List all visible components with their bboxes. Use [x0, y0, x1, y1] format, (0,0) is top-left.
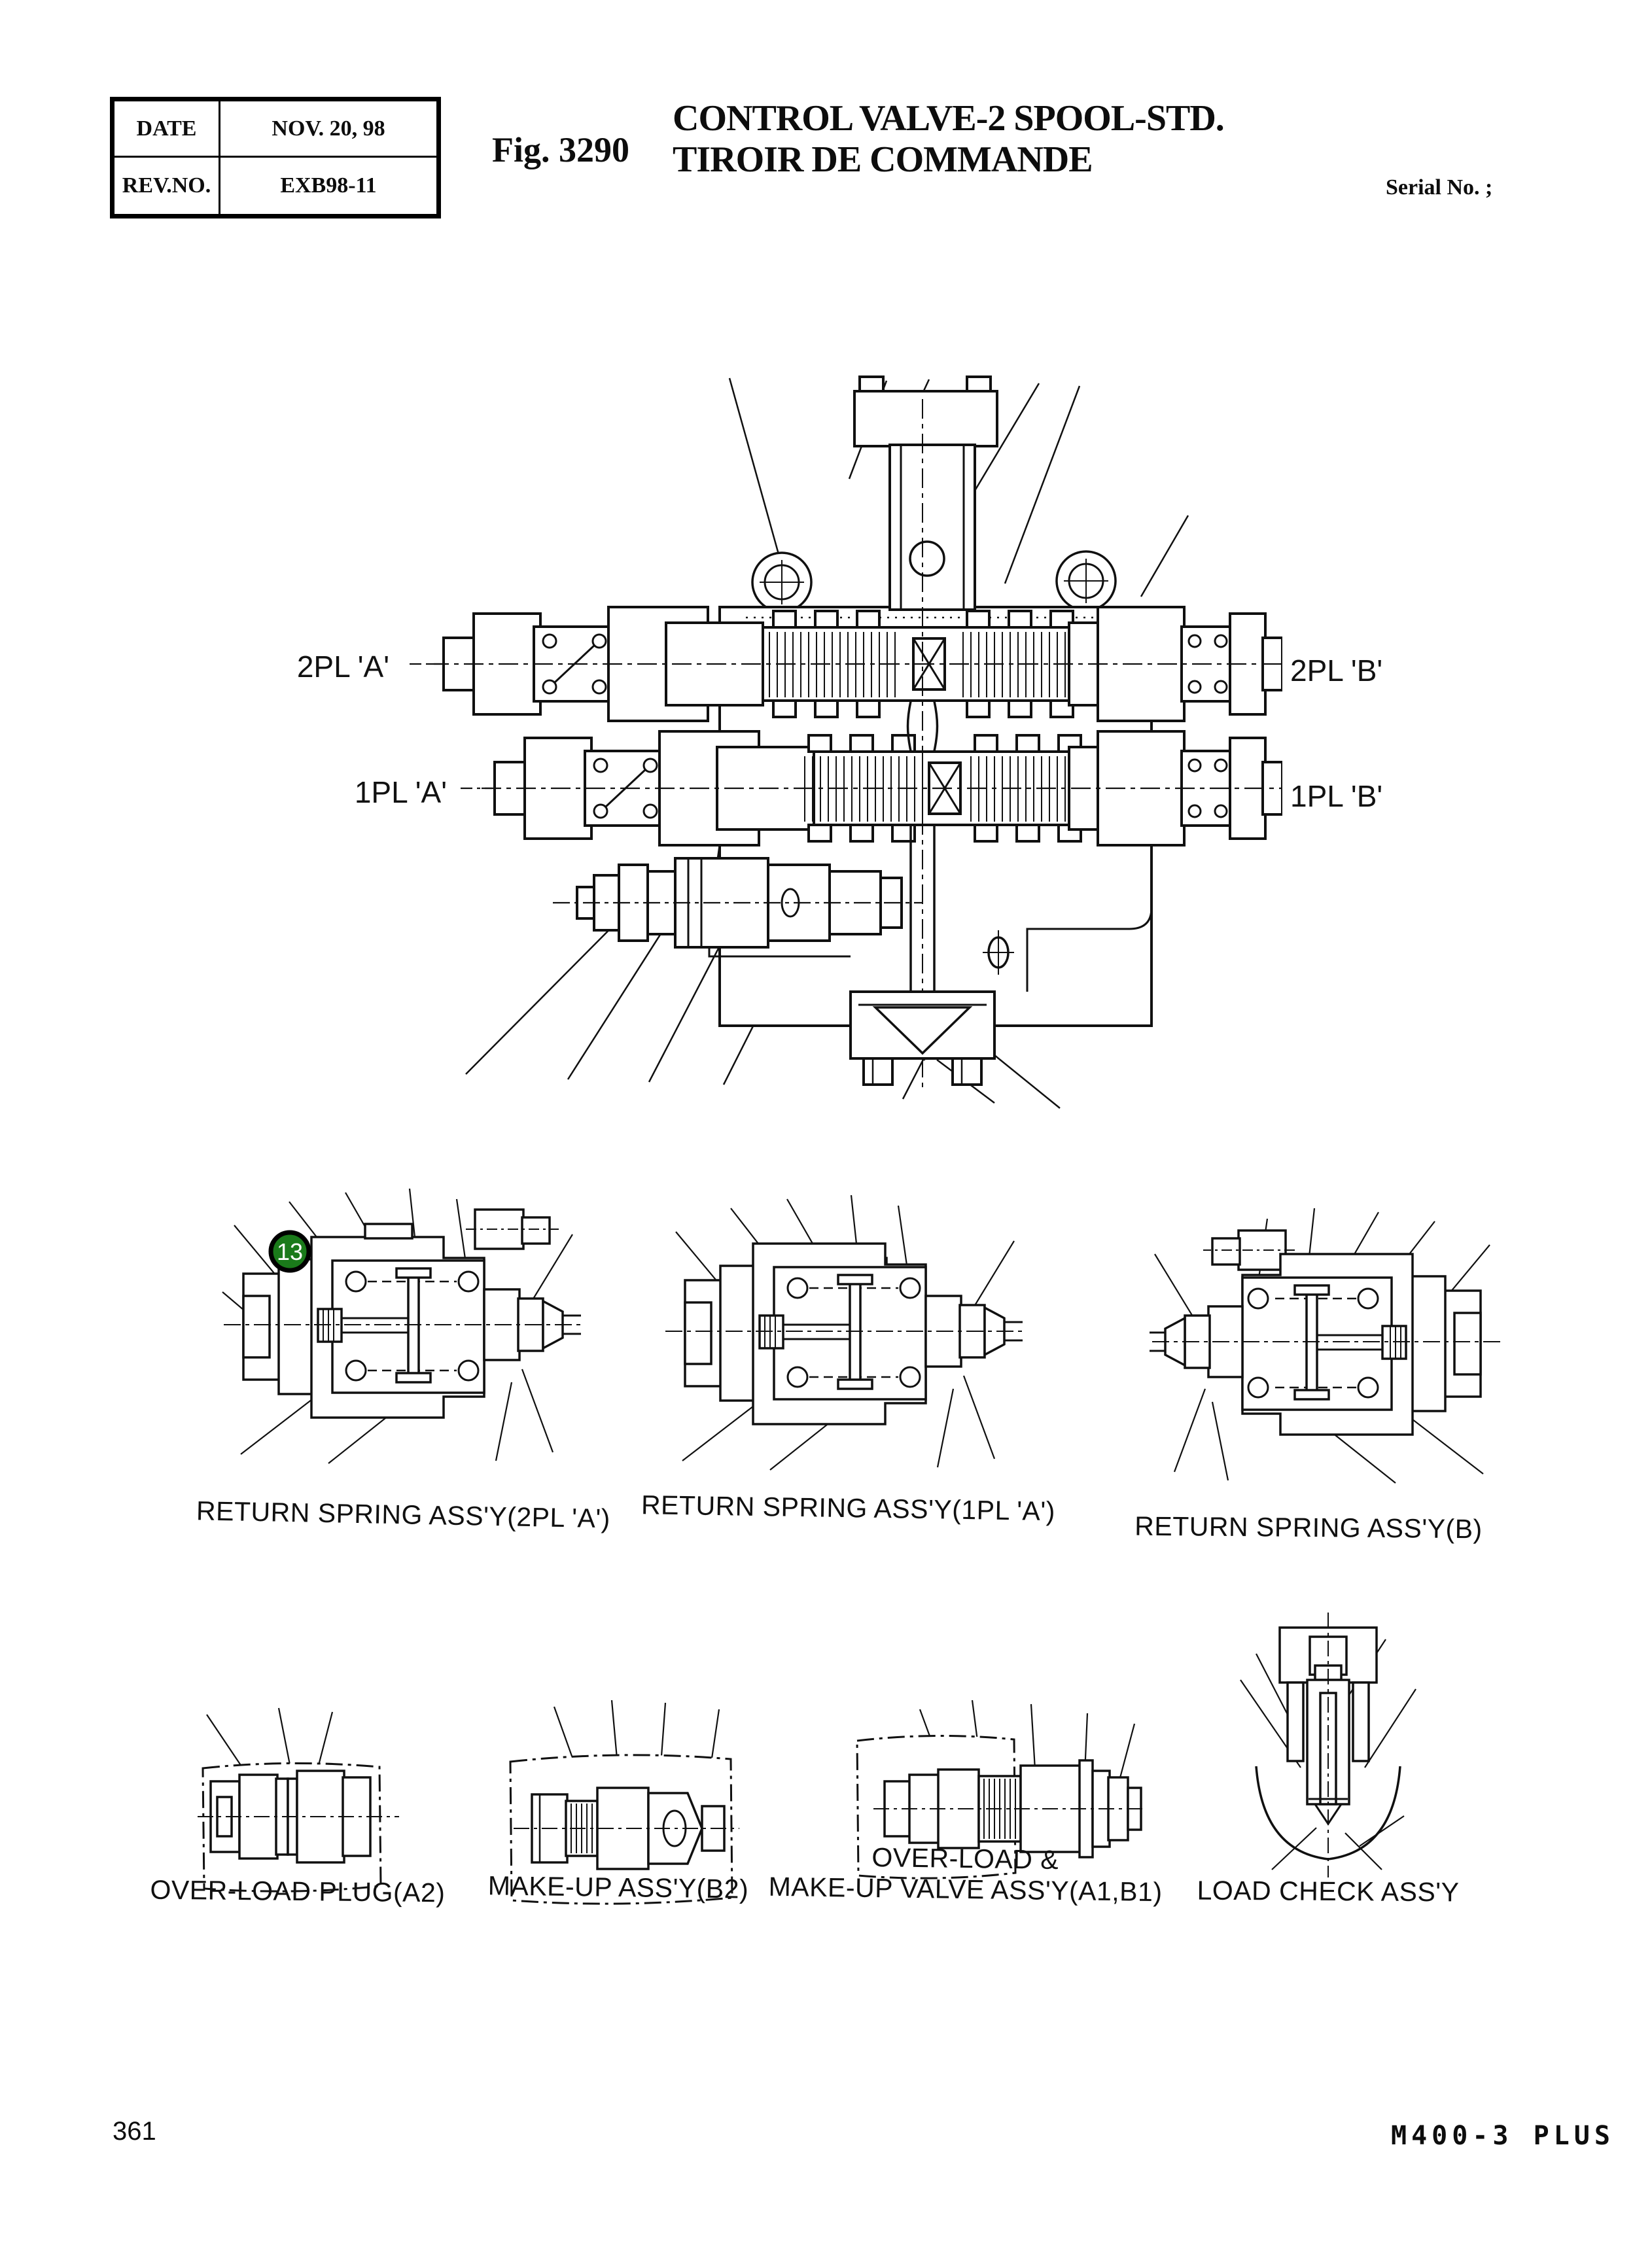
caption-return-spring-2pl-a: RETURN SPRING ASS'Y(2PL 'A') — [196, 1495, 589, 1534]
figure-return-spring-1pl-a — [658, 1181, 1024, 1482]
serial-number-label: Serial No. ; — [1386, 175, 1492, 200]
port-label-2pl-a: 2PL 'A' — [262, 649, 389, 684]
top-cover — [854, 377, 997, 610]
revision-table: DATE NOV. 20, 98 REV.NO. EXB98-11 — [110, 97, 441, 218]
page-number: 361 — [113, 2117, 156, 2146]
caption-return-spring-b: RETURN SPRING ASS'Y(B) — [1112, 1510, 1505, 1544]
model-code: M400-3 PLUS — [1391, 2121, 1615, 2151]
caption-load-check: LOAD CHECK ASS'Y — [1132, 1875, 1524, 1908]
port-label-2pl-b: 2PL 'B' — [1290, 653, 1382, 688]
figure-return-spring-2pl-a: 13 — [216, 1174, 582, 1482]
title-line-fr: TIROIR DE COMMANDE — [673, 139, 1224, 181]
figure-number: Fig. 3290 — [492, 130, 629, 170]
date-label: DATE — [114, 101, 220, 158]
caption-makeup-assy: MAKE-UP ASS'Y(B2) — [419, 1870, 818, 1906]
badge-number: 13 — [277, 1238, 303, 1265]
page-title: CONTROL VALVE-2 SPOOL-STD. TIROIR DE COM… — [673, 98, 1224, 181]
title-line-en: CONTROL VALVE-2 SPOOL-STD. — [673, 98, 1224, 139]
figure-load-check — [1217, 1603, 1439, 1884]
caption-return-spring-1pl-a: RETURN SPRING ASS'Y(1PL 'A') — [641, 1490, 1041, 1527]
port-label-1pl-b: 1PL 'B' — [1290, 778, 1382, 814]
revno-value: EXB98-11 — [220, 158, 436, 214]
caption-overload-makeup-line1: OVER-LOAD & — [769, 1841, 1162, 1877]
part-badge-13: 13 — [271, 1232, 309, 1270]
revno-label: REV.NO. — [114, 158, 220, 214]
main-valve-diagram — [406, 366, 1282, 1112]
manual-page: DATE NOV. 20, 98 REV.NO. EXB98-11 Fig. 3… — [0, 0, 1652, 2251]
date-value: NOV. 20, 98 — [220, 101, 436, 158]
caption-overload-makeup: OVER-LOAD & MAKE-UP VALVE ASS'Y(A1,B1) — [768, 1841, 1161, 1908]
caption-overload-makeup-line2: MAKE-UP VALVE ASS'Y(A1,B1) — [768, 1872, 1161, 1908]
port-label-1pl-a: 1PL 'A' — [319, 775, 447, 810]
figure-return-spring-b — [1148, 1194, 1508, 1488]
